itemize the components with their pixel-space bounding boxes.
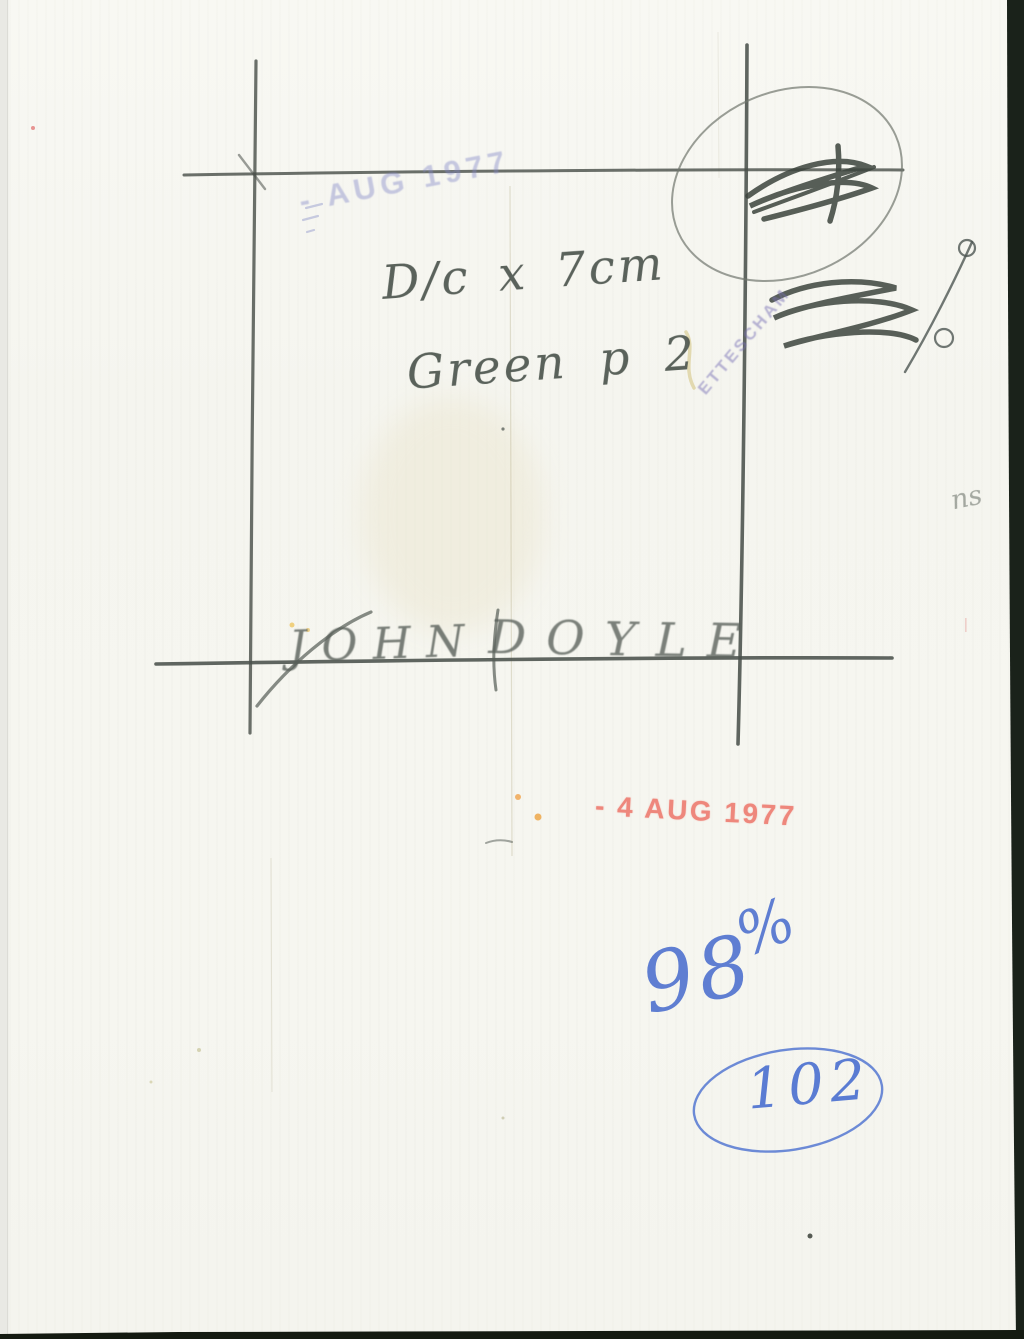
signature-first-name: JOHN xyxy=(288,615,480,673)
crop-marks xyxy=(156,45,903,843)
pencil-and-ink-marks-layer xyxy=(0,0,1024,1339)
crop-corner-tick xyxy=(239,155,265,189)
signature-last-name: DOYLE xyxy=(488,610,762,670)
paper-smudge xyxy=(360,397,544,633)
percent-like-scribble xyxy=(772,240,975,372)
edge-pencil-fragment: ns xyxy=(948,480,985,517)
crossed-out-scribble xyxy=(748,146,874,221)
scan-edge-left-hairline xyxy=(7,0,8,1339)
scan-edge-right xyxy=(1007,0,1024,1339)
crop-line-vertical-left xyxy=(250,61,256,733)
blue-pen-circled-number: 102 xyxy=(744,1047,874,1123)
scan-edge-bottom xyxy=(0,1330,1024,1339)
circled-scribble-oval xyxy=(641,52,933,317)
small-pencil-dash xyxy=(486,840,512,843)
photo-verso-scan: - AUG 1977 D/c x 7cm Green p 2 ETTESCHAM… xyxy=(0,0,1024,1339)
scan-edge-left xyxy=(0,0,7,1339)
